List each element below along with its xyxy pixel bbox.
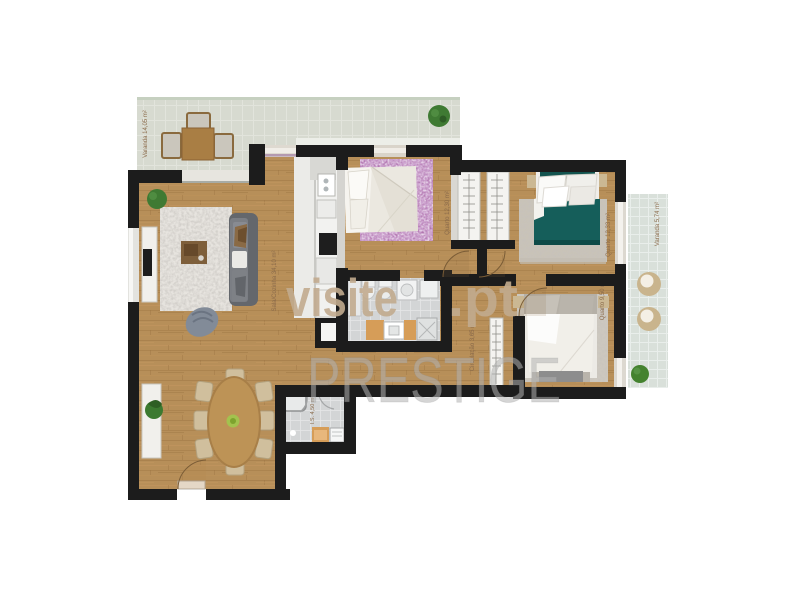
svg-text:Quarto 12,30 m²: Quarto 12,30 m² [445,191,451,235]
svg-text:Sala/Cozinha 34,10 m²: Sala/Cozinha 34,10 m² [272,250,278,311]
svg-text:Quarto 12,33 m²: Quarto 12,33 m² [606,213,612,257]
svg-text:PRESTIGE: PRESTIGE [307,344,561,416]
svg-text:visite: visite [286,269,398,328]
svg-text:Varanda 5,74 m²: Varanda 5,74 m² [655,202,661,246]
svg-text:Varanda 14,05 m²: Varanda 14,05 m² [143,110,149,158]
svg-text:.pt: .pt [448,269,518,328]
